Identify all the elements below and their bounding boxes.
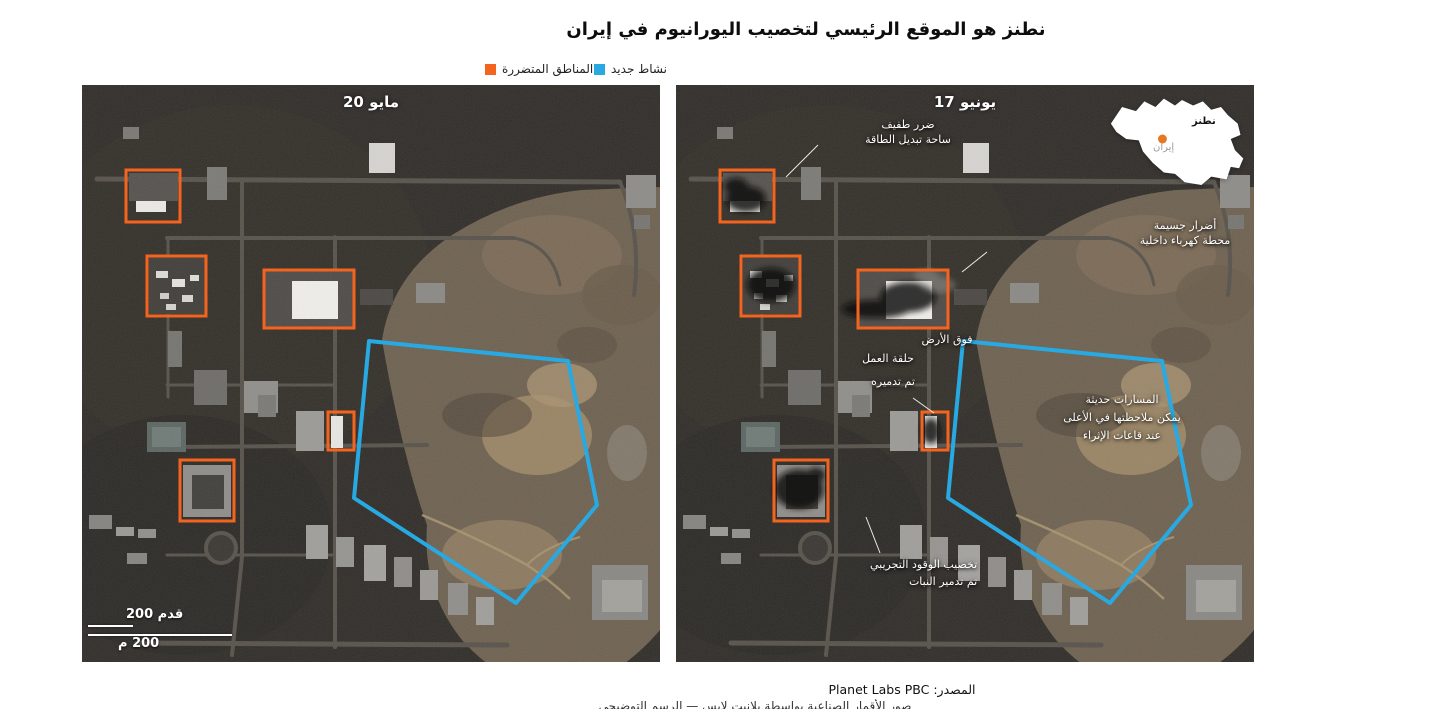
annotation-line: تخصيب الوقود التجريبي — [870, 556, 977, 573]
legend-damaged-label: المناطق المتضررة — [502, 62, 593, 76]
inset-site-label: نطنز — [1192, 116, 1216, 127]
inset-country-label: إيران — [1153, 142, 1174, 153]
date-label-may: 20 مايو — [82, 93, 660, 111]
annotation-pilot-fuel-plant: تخصيب الوقود التجريبي تم تدمير النبات — [870, 556, 977, 590]
annotation-line: ضرر طفيف — [865, 118, 951, 133]
source-prefix: المصدر: — [933, 682, 975, 697]
iran-outline — [1105, 93, 1245, 185]
iran-inset-map — [1105, 93, 1245, 185]
damaged-areas-swatch-icon — [485, 64, 496, 75]
annotation-workshop-line1: فوق الأرض — [922, 333, 973, 348]
scale-meters-bar — [88, 634, 232, 636]
annotation-switchyard-damage: ضرر طفيف ساحة تبديل الطاقة — [865, 118, 951, 147]
annotation-line: ساحة تبديل الطاقة — [865, 133, 951, 148]
legend-new-activity: نشاط جديد — [594, 62, 667, 76]
satellite-image-may — [82, 85, 660, 662]
credit-line-cutoff: صور الأقمار الصناعية بواسطة بلانيت لابس … — [599, 699, 912, 709]
annotation-line: المسارات حديثة — [1063, 391, 1181, 409]
annotation-line: تم تدمير النبات — [870, 573, 977, 590]
source-name: Planet Labs PBC — [829, 682, 930, 697]
annotation-workshop-line3: تم تدميره — [871, 375, 915, 390]
annotation-workshop-line2: حلقة العمل — [862, 352, 914, 367]
satellite-panel-may: 20 مايو 200 قدم 200 م — [82, 85, 660, 662]
annotation-power-plant-damage: أضرار جسيمة محطة كهرباء داخلية — [1140, 219, 1230, 248]
page-title: نطنز هو الموقع الرئيسي لتخصيب اليورانيوم… — [566, 19, 1045, 40]
news-graphic: نطنز هو الموقع الرئيسي لتخصيب اليورانيوم… — [0, 0, 1443, 709]
annotation-line: أضرار جسيمة — [1140, 219, 1230, 234]
satellite-panel-june: 17 يونيو ضرر طفيف ساحة تبديل الطاقة أضرا… — [676, 85, 1254, 662]
legend-damaged-areas: المناطق المتضررة — [485, 62, 593, 76]
scale-meters-label: 200 م — [118, 636, 159, 651]
legend-new-activity-label: نشاط جديد — [611, 62, 667, 76]
new-activity-swatch-icon — [594, 64, 605, 75]
scale-feet-bar — [88, 625, 133, 627]
annotation-new-tracks: المسارات حديثة يمكن ملاحظتها في الأعلى ع… — [1063, 391, 1181, 445]
source-line: المصدر: Planet Labs PBC — [829, 682, 976, 697]
annotation-line: محطة كهرباء داخلية — [1140, 234, 1230, 249]
scale-feet-label: 200 قدم — [126, 607, 183, 622]
annotation-line: عند قاعات الإثراء — [1063, 427, 1181, 445]
annotation-line: يمكن ملاحظتها في الأعلى — [1063, 409, 1181, 427]
